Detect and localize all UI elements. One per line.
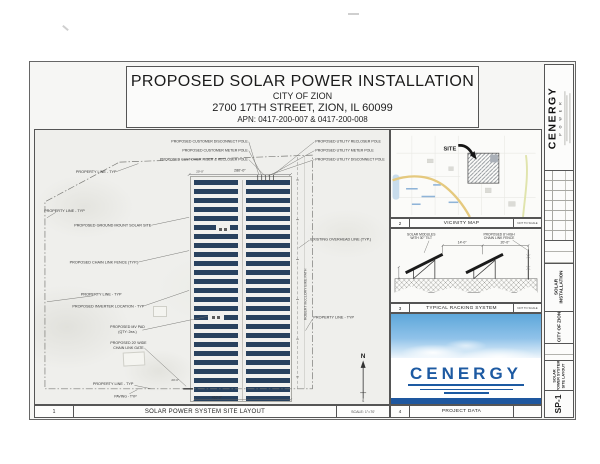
panel-number: 4 — [391, 406, 410, 417]
racking-labels: SOLAR MODULES WITH 30° TILT PROPOSED 8' … — [407, 232, 515, 240]
project-data-panel: CENERGY — [390, 313, 542, 405]
solar-module-2 — [466, 254, 503, 272]
contact-text-line — [569, 93, 570, 143]
logo-navy-bar — [391, 398, 541, 404]
revision-table — [545, 171, 573, 241]
dim-gate: 20'-0" — [171, 378, 179, 382]
label-property-line: PROPERTY LINE - TYP — [93, 382, 134, 386]
panel-title: PROJECT DATA — [410, 406, 513, 417]
map-blue-labels — [406, 184, 458, 205]
vicinity-map-drawing: SITE — [391, 130, 541, 217]
sky-photo — [391, 314, 541, 358]
racking-drawing: 14'-0" 20'-0" SOLAR MODULES WITH 30° TIL… — [391, 229, 541, 302]
brand-name: CENERGY — [546, 86, 558, 148]
sheet-title-strip: CENERGY P O W E R SOLAR INSTALLATION CIT… — [544, 64, 574, 418]
label-cust-disconnect: PROPOSED CUSTOMER DISCONNECT POLE — [171, 140, 248, 144]
dim-lines — [398, 244, 530, 279]
interconnection-poles — [258, 175, 274, 181]
panel-title: SOLAR POWER SYSTEM SITE LAYOUT — [74, 406, 336, 417]
project-name-line2: INSTALLATION — [559, 271, 564, 304]
contact-text-line — [567, 95, 568, 141]
site-parcel-corner — [490, 155, 498, 163]
racking-leaders — [424, 240, 527, 253]
panel-number: 1 — [35, 406, 74, 417]
brand-sub: P O W E R — [558, 86, 562, 148]
bike-path-label: ROBERT McCLORY BIKE PATH — [303, 268, 307, 320]
label-mv-pad: PROPOSED MV PAD — [110, 325, 145, 329]
racking-panel: 14'-0" 20'-0" SOLAR MODULES WITH 30° TIL… — [390, 228, 542, 303]
sheet-title-line3: SITE LAYOUT — [561, 361, 565, 391]
north-arrow-icon: N S — [360, 353, 366, 403]
contact-text-line — [564, 91, 565, 145]
label-property-line: PROPERTY LINE - TYP — [76, 170, 117, 174]
label-util-disconnect: PROPOSED UTILITY DISCONNECT POLE — [315, 158, 385, 162]
panel-number: 2 — [391, 219, 410, 227]
panel-scale: NOT TO SCALE — [513, 304, 541, 312]
label-fence2: CHAIN LINK FENCE — [484, 236, 515, 240]
plan-annotations: ROBERT McCLORY BIKE PATH 280'-0" 20'-0" — [35, 130, 389, 404]
label-cust-riser: PROPOSED CUSTOMER RISER & RECLOSER POLE — [160, 158, 248, 162]
strip-sheet-title-box: SOLAR POWER SYSTEM SITE LAYOUT — [545, 361, 573, 391]
strip-client-box: CITY OF ZION — [545, 312, 573, 344]
site-arrow-icon — [458, 145, 473, 155]
title-subtitle: CITY OF ZION — [127, 91, 478, 102]
title-apn: APN: 0417-200-007 & 0417-200-008 — [127, 115, 478, 125]
plan-labels: PROPERTY LINE - TYP PROPERTY LINE - TYP … — [44, 140, 385, 399]
label-modules-tilt: WITH 30° TILT — [410, 236, 432, 240]
label-overhead: EXISTING OVERHEAD LINE (TYP.) — [310, 238, 371, 242]
site-plan-panel: ROBERT McCLORY BIKE PATH 280'-0" 20'-0" — [34, 129, 390, 405]
dim-row-spacing: 14'-0" — [458, 241, 468, 245]
panel-scale-empty — [513, 406, 541, 417]
label-inverter: PROPOSED INVERTER LOCATION - TYP — [72, 304, 144, 308]
dim-edge: 20'-0" — [196, 170, 204, 174]
dim-south: 410'-0" — [212, 395, 223, 399]
label-property-line: PROPERTY LINE - TYP — [313, 316, 354, 320]
drawing-sheet: PROPOSED SOLAR POWER INSTALLATION CITY O… — [29, 61, 576, 420]
label-ground-mount: PROPOSED GROUND MOUNT SOLAR SITE — [74, 224, 152, 228]
vicinity-titlebar: 2 VICINITY MAP NOT TO SCALE — [390, 218, 542, 228]
client-name: CITY OF ZION — [556, 312, 561, 342]
drawn-checked-box — [545, 241, 573, 264]
dim-array-width: 280'-0" — [234, 169, 246, 173]
racking-titlebar: 3 TYPICAL RACKING SYSTEM NOT TO SCALE — [390, 303, 542, 313]
strip-brand: CENERGY P O W E R — [546, 86, 571, 148]
cenergy-logo-text: CENERGY — [408, 365, 524, 386]
label-gate2: CHAIN LINK GATE — [113, 346, 144, 350]
solar-module-1 — [406, 254, 443, 272]
south-letter: S — [362, 399, 364, 403]
title-address: 2700 17TH STREET, ZION, IL 60099 — [127, 102, 478, 115]
label-cust-meter: PROPOSED CUSTOMER METER POLE — [182, 149, 248, 153]
logo-underline-1 — [420, 389, 513, 391]
vicinity-map-panel: SITE — [390, 129, 542, 218]
secondary-road — [523, 155, 527, 217]
project-data-titlebar: 4 PROJECT DATA — [390, 405, 542, 418]
site-plan-titlebar: 1 SOLAR POWER SYSTEM SITE LAYOUT SCALE: … — [34, 405, 390, 418]
scan-artifact — [348, 13, 359, 15]
site-label: SITE — [443, 146, 456, 152]
sheet-number-box: SP-1 — [545, 391, 573, 417]
label-mv-pad-qty: (QTY: 2ea.) — [118, 330, 136, 334]
logo-underline-2 — [444, 392, 489, 394]
panel-scale: NOT TO SCALE — [513, 219, 541, 227]
panel-scale: SCALE: 1"=70' — [336, 406, 389, 417]
date-scale-box — [545, 344, 573, 361]
property-boundary-line — [45, 155, 312, 389]
dim-fence-offset: 20'-0" — [500, 241, 510, 245]
panel-number: 3 — [391, 304, 410, 312]
strip-brand-box: CENERGY P O W E R — [545, 65, 573, 171]
scan-artifact — [62, 25, 69, 31]
title-block: PROPOSED SOLAR POWER INSTALLATION CITY O… — [126, 66, 479, 128]
label-property-line: PROPERTY LINE - TYP — [81, 292, 122, 296]
north-letter: N — [361, 353, 366, 360]
label-gate: PROPOSED 20' WIDE — [110, 341, 147, 345]
cenergy-logo: CENERGY — [391, 358, 541, 398]
panel-title: VICINITY MAP — [410, 219, 513, 227]
label-property-line: PROPERTY LINE - TYP — [44, 209, 85, 213]
label-util-recloser: PROPOSED UTILITY RECLOSER POLE — [315, 140, 381, 144]
label-paving: PAVING - TYP — [114, 394, 137, 398]
label-util-meter: PROPOSED UTILITY METER POLE — [315, 149, 374, 153]
page-title: PROPOSED SOLAR POWER INSTALLATION — [127, 73, 478, 91]
sheet-number: SP-1 — [554, 395, 564, 414]
strip-project-box: SOLAR INSTALLATION — [545, 264, 573, 312]
label-chain-fence: PROPOSED CHAIN LINK FENCE (TYP.) — [70, 261, 140, 265]
panel-title: TYPICAL RACKING SYSTEM — [410, 304, 513, 312]
